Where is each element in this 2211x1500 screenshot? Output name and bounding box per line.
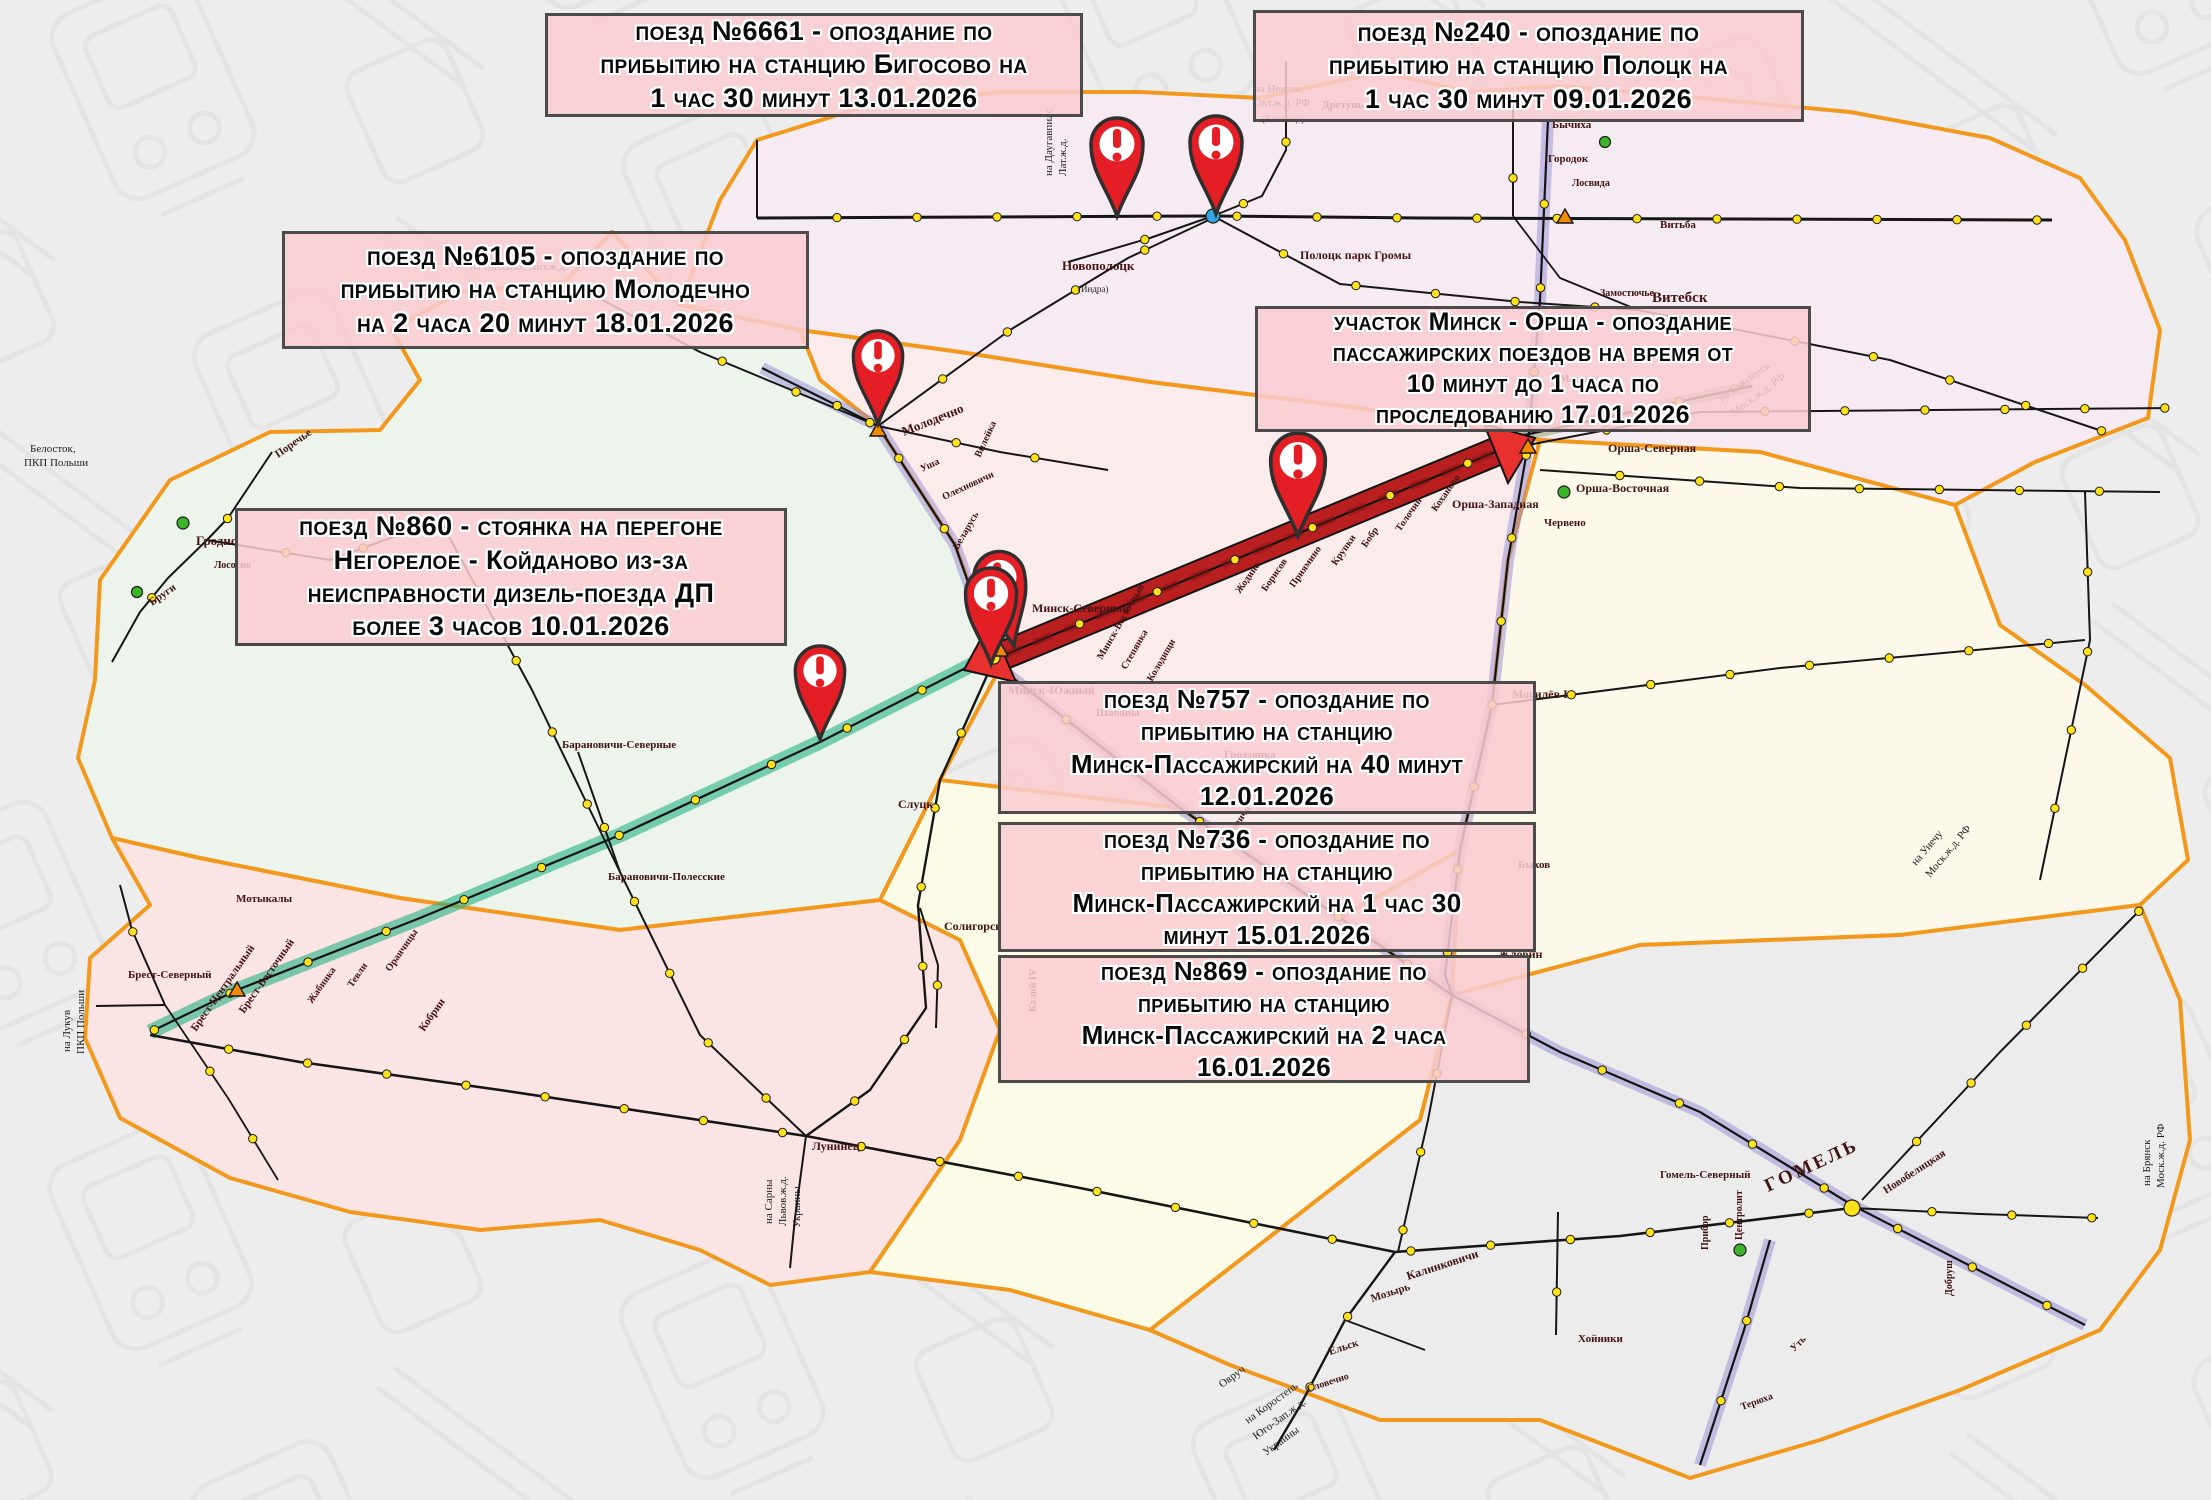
station-dot (1393, 214, 1401, 222)
station-dot (1014, 1172, 1022, 1180)
station-dot (2044, 639, 2052, 647)
station-dot (699, 1116, 707, 1124)
station-dot (1869, 353, 1877, 361)
callout-line: прибытию на станцию Молодечно (341, 273, 751, 306)
station-label: Солигорск (944, 919, 1002, 933)
callout-line: прибытию на станцию (1141, 855, 1393, 887)
station-dot (704, 1039, 712, 1047)
callout-line: Минск-Пассажирский на 40 минут (1071, 748, 1463, 780)
station-dot (225, 1045, 233, 1053)
station-dot (1805, 661, 1813, 669)
station-dot (2084, 568, 2092, 576)
station-dot (918, 686, 926, 694)
station-dot (1075, 620, 1083, 628)
station-dot (1748, 1140, 1756, 1148)
major-station-dot (1734, 1244, 1746, 1256)
station-dot (1894, 1224, 1902, 1232)
station-dot (615, 831, 623, 839)
belarus-railway-delay-map: Полоцк парк ГромыНовополоцкДретуньБычиха… (0, 0, 2211, 1500)
station-dot (1386, 491, 1394, 499)
station-dot (1279, 250, 1287, 258)
callout-line: участок Минск - Орша - опоздание (1334, 307, 1732, 338)
callout-line: на 2 часа 20 минут 18.01.2026 (357, 307, 734, 340)
station-label: Орша-Северная (1608, 441, 1697, 455)
station-dot (1717, 1397, 1725, 1405)
station-dot (1497, 617, 1505, 625)
station-dot (666, 969, 674, 977)
station-dot (917, 883, 925, 891)
station-dot (1417, 1148, 1425, 1156)
station-dot (993, 213, 1001, 221)
station-label: Брест-Северный (128, 969, 212, 981)
station-dot (2081, 405, 2089, 413)
station-dot (866, 418, 874, 426)
edge-label: Лат.ж.д. (1057, 138, 1069, 176)
station-label: Барановичи-Северные (562, 739, 676, 751)
station-label: Добруш (1944, 1260, 1955, 1296)
station-dot (1473, 214, 1481, 222)
station-label: Новополоцк (1062, 258, 1135, 273)
major-station-dot (1844, 1200, 1860, 1216)
station-dot (1616, 471, 1624, 479)
station-dot (833, 401, 841, 409)
station-dot (1968, 1263, 1976, 1271)
station-dot (1793, 215, 1801, 223)
station-dot (304, 958, 312, 966)
station-label: Минск-Северный (1032, 601, 1129, 615)
station-dot (1820, 1184, 1828, 1192)
edge-label: Моск.ж.д. РФ (2155, 1123, 2167, 1188)
station-dot (1935, 485, 1943, 493)
station-label: Замостючье (1600, 288, 1654, 299)
station-dot (1743, 1317, 1751, 1325)
station-dot (1407, 1247, 1415, 1255)
callout-line: поезд №6105 - опоздание по (367, 240, 724, 273)
station-dot (2022, 1021, 2030, 1029)
station-dot (843, 724, 851, 732)
station-dot (1509, 174, 1517, 182)
station-dot (1946, 376, 1954, 384)
major-station-dot (1600, 137, 1611, 148)
station-dot (2015, 486, 2023, 494)
edge-label: на Лукув (61, 1010, 73, 1052)
major-station-dot (177, 517, 189, 529)
station-label: Витьба (1660, 219, 1696, 231)
station-dot (630, 897, 638, 905)
station-dot (895, 454, 903, 462)
station-dot (460, 896, 468, 904)
station-dot (2008, 1211, 2016, 1219)
station-dot (851, 1097, 859, 1105)
station-label: Полоцк парк Громы (1300, 248, 1412, 262)
station-dot (1313, 213, 1321, 221)
callout-line: Минск-Пассажирский на 2 часа (1082, 1019, 1447, 1051)
station-dot (1464, 459, 1472, 467)
station-dot (1031, 454, 1039, 462)
station-dot (1647, 680, 1655, 688)
station-label: Орша-Западная (1452, 497, 1539, 511)
callout-line: прибытию на станцию Бигосово на (600, 48, 1027, 81)
station-dot (1308, 523, 1316, 531)
station-dot (933, 981, 941, 989)
callout-line: поезд №6661 - опоздание по (636, 15, 993, 48)
station-dot (1508, 534, 1516, 542)
station-dot (691, 796, 699, 804)
station-dot (2001, 405, 2009, 413)
edge-label: Белосток, (30, 443, 76, 455)
station-dot (1141, 235, 1149, 243)
station-dot (1399, 1226, 1407, 1234)
major-station-dot (132, 587, 143, 598)
callout-line: поезд №240 - опоздание по (1358, 16, 1700, 49)
callout-train-736: поезд №736 - опоздание поприбытию на ста… (998, 822, 1536, 952)
station-dot (1873, 215, 1881, 223)
station-dot (1841, 407, 1849, 415)
station-dot (383, 1070, 391, 1078)
station-dot (919, 962, 927, 970)
edge-label: на Сарны (763, 1179, 775, 1224)
callout-line: прибытию на станцию (1138, 987, 1390, 1019)
callout-line: поезд №736 - опоздание по (1104, 823, 1430, 855)
edge-label: на Даугавпилс (1043, 108, 1055, 176)
station-dot (223, 514, 231, 522)
station-dot (249, 1135, 257, 1143)
station-dot (2078, 964, 2086, 972)
station-dot (1805, 1209, 1813, 1217)
station-dot (1566, 1235, 1574, 1243)
station-dot (2161, 404, 2169, 412)
station-label: Мотыкалы (236, 893, 293, 905)
station-dot (1965, 647, 1973, 655)
station-dot (2095, 487, 2103, 495)
station-dot (1486, 1241, 1494, 1249)
station-dot (778, 1128, 786, 1136)
station-dot (1511, 297, 1519, 305)
callout-line: Негорелое - Койданово из-за (334, 544, 689, 577)
station-label: Витебск (1652, 290, 1708, 306)
station-dot (2051, 804, 2059, 812)
station-dot (913, 213, 921, 221)
station-dot (939, 375, 947, 383)
callout-line: минут 15.01.2026 (1164, 919, 1371, 951)
station-dot (1233, 212, 1241, 220)
station-dot (1540, 200, 1548, 208)
edge-label: Львов.ж.д. (777, 1176, 789, 1226)
callout-line: прибытию на станцию (1141, 715, 1393, 747)
callout-line: 12.01.2026 (1200, 780, 1334, 812)
edge-label: Украины (791, 1186, 803, 1228)
station-dot (792, 388, 800, 396)
station-dot (129, 928, 137, 936)
callout-line: проследованию 17.01.2026 (1376, 400, 1690, 431)
station-dot (537, 863, 545, 871)
station-dot (2067, 726, 2075, 734)
callout-train-757: поезд №757 - опоздание поприбытию на ста… (998, 681, 1536, 814)
callout-line: более 3 часов 10.01.2026 (352, 610, 669, 643)
station-dot (1885, 654, 1893, 662)
edge-label: на Брянск (2141, 1139, 2153, 1186)
callout-line: 16.01.2026 (1197, 1051, 1331, 1083)
major-station-dot (1558, 486, 1570, 498)
callout-train-869: поезд №869 - опоздание поприбытию на ста… (998, 955, 1530, 1083)
station-dot (1093, 1187, 1101, 1195)
station-label: Слуцк (898, 797, 933, 811)
station-dot (2083, 648, 2091, 656)
station-dot (1567, 691, 1575, 699)
station-dot (718, 357, 726, 365)
station-dot (462, 1081, 470, 1089)
station-dot (206, 1067, 214, 1075)
station-dot (1536, 284, 1544, 292)
station-dot (1239, 199, 1247, 207)
station-dot (600, 823, 608, 831)
station-dot (2033, 216, 2041, 224)
station-dot (1695, 477, 1703, 485)
station-dot (1003, 328, 1011, 336)
station-dot (1343, 1312, 1351, 1320)
station-dot (620, 1105, 628, 1113)
rail-line-18 (96, 1005, 165, 1006)
station-dot (1775, 482, 1783, 490)
station-dot (2097, 427, 2105, 435)
station-dot (2135, 907, 2143, 915)
station-label: Червено (1544, 517, 1586, 529)
callout-line: Минск-Пассажирский на 1 час 30 (1072, 887, 1461, 919)
edge-label: (Индра) (1078, 284, 1108, 294)
station-dot (1352, 281, 1360, 289)
station-dot (957, 729, 965, 737)
callout-line: 1 час 30 минут 09.01.2026 (1365, 83, 1692, 116)
station-dot (541, 1093, 549, 1101)
station-dot (833, 213, 841, 221)
callout-section-minsk-orsha: участок Минск - Орша - опозданиепассажир… (1255, 306, 1811, 432)
station-dot (303, 1059, 311, 1067)
callout-line: 1 час 30 минут 13.01.2026 (650, 82, 977, 115)
edge-label: ПКП Польши (75, 990, 87, 1054)
callout-train-240: поезд №240 - опоздание поприбытию на ста… (1253, 10, 1804, 122)
station-label: Гродно (196, 533, 237, 548)
station-dot (1141, 246, 1149, 254)
station-dot (1725, 1219, 1733, 1227)
station-label: Хойники (1578, 1333, 1623, 1345)
station-dot (1928, 1208, 1936, 1216)
station-label: Барановичи-Полесские (608, 871, 725, 883)
station-dot (767, 760, 775, 768)
station-dot (1633, 215, 1641, 223)
station-dot (1598, 1066, 1606, 1074)
station-dot (2022, 401, 2030, 409)
station-dot (2088, 1214, 2096, 1222)
station-dot (1250, 1219, 1258, 1227)
station-dot (1726, 670, 1734, 678)
station-dot (150, 1026, 158, 1034)
callout-line: поезд №757 - опоздание по (1104, 683, 1430, 715)
station-dot (382, 927, 390, 935)
station-dot (2043, 1301, 2051, 1309)
station-dot (1967, 1079, 1975, 1087)
station-dot (1675, 1099, 1683, 1107)
station-dot (940, 525, 948, 533)
station-dot (1153, 212, 1161, 220)
station-dot (900, 1035, 908, 1043)
station-dot (1328, 1235, 1336, 1243)
station-dot (1431, 289, 1439, 297)
callout-line: пассажирских поездов на время от (1333, 338, 1733, 369)
station-label: Гомель-Северный (1660, 1169, 1751, 1181)
station-label: Прибор (1700, 1215, 1711, 1250)
station-dot (1153, 588, 1161, 596)
station-label: Лосвида (1572, 178, 1610, 189)
station-dot (1646, 1228, 1654, 1236)
callout-line: 10 минут до 1 часа по (1407, 369, 1659, 400)
station-dot (512, 657, 520, 665)
station-dot (936, 1157, 944, 1165)
edge-label: ПКП Польши (24, 457, 88, 469)
station-label: Орша-Восточная (1576, 481, 1670, 495)
station-dot (583, 800, 591, 808)
station-dot (1912, 1137, 1920, 1145)
station-dot (1282, 138, 1290, 146)
station-dot (1921, 406, 1929, 414)
station-dot (1171, 1203, 1179, 1211)
station-dot (762, 1094, 770, 1102)
callout-train-860: поезд №860 - стоянка на перегонеНегорело… (235, 508, 787, 646)
callout-line: поезд №860 - стоянка на перегоне (299, 510, 722, 543)
station-dot (1953, 216, 1961, 224)
callout-train-6661: поезд №6661 - опоздание поприбытию на ст… (545, 13, 1083, 117)
station-label: Лунинец (812, 1139, 860, 1153)
callout-train-6105: поезд №6105 - опоздание поприбытию на ст… (282, 231, 809, 349)
callout-line: поезд №869 - опоздание по (1101, 955, 1427, 987)
callout-line: неисправности дизель-поезда ДП (308, 577, 715, 610)
station-label: Городок (1548, 153, 1589, 165)
station-dot (1073, 212, 1081, 220)
station-dot (1553, 1288, 1561, 1296)
station-dot (548, 728, 556, 736)
station-dot (1713, 215, 1721, 223)
callout-line: прибытию на станцию Полоцк на (1329, 49, 1728, 82)
station-dot (1231, 556, 1239, 564)
station-label: Центролит (1734, 1190, 1745, 1240)
station-dot (952, 439, 960, 447)
station-dot (1855, 485, 1863, 493)
